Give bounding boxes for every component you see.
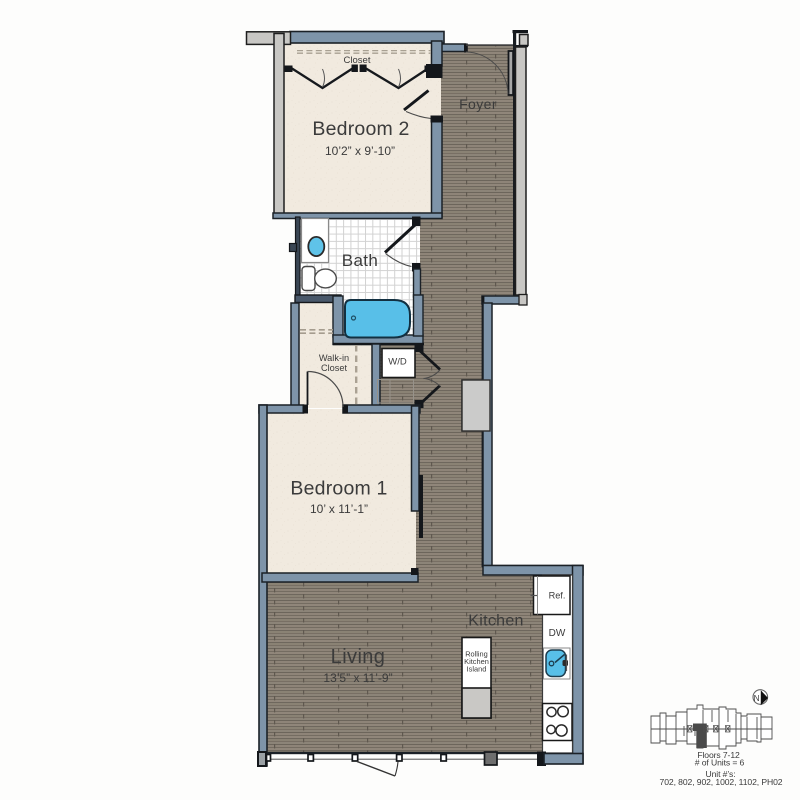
svg-text:Living: Living <box>331 646 386 668</box>
svg-text:10’2” x 9’-10”: 10’2” x 9’-10” <box>325 144 395 158</box>
svg-text:DW: DW <box>549 628 566 639</box>
svg-text:10’ x 11’-1”: 10’ x 11’-1” <box>310 502 368 516</box>
svg-text:Bath: Bath <box>342 251 379 270</box>
svg-text:Closet: Closet <box>344 55 371 66</box>
svg-text:Bedroom 2: Bedroom 2 <box>312 118 409 140</box>
svg-text:Walk-in: Walk-in <box>319 353 349 363</box>
svg-text:702, 802, 902, 1002, 1102, PH0: 702, 802, 902, 1002, 1102, PH02 <box>660 777 783 787</box>
svg-text:Island: Island <box>467 665 487 674</box>
svg-text:Closet: Closet <box>321 363 347 373</box>
svg-text:# of Units = 6: # of Units = 6 <box>695 758 745 768</box>
svg-text:W/D: W/D <box>388 357 407 368</box>
svg-text:N: N <box>754 694 760 703</box>
svg-text:Bedroom 1: Bedroom 1 <box>290 478 387 500</box>
svg-text:Ref.: Ref. <box>549 591 566 601</box>
svg-text:13’5” x 11’-9”: 13’5” x 11’-9” <box>323 671 392 685</box>
svg-text:Foyer: Foyer <box>459 96 497 112</box>
svg-text:Kitchen: Kitchen <box>468 613 523 630</box>
